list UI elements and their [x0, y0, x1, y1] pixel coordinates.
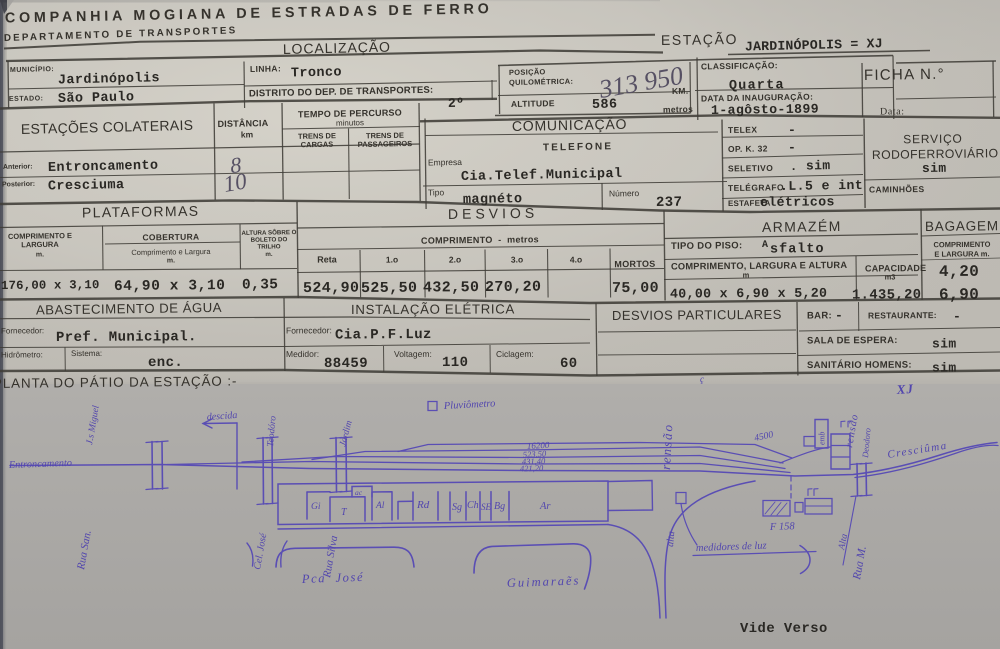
svg-text:88459: 88459 — [324, 356, 368, 372]
svg-text:KM.: KM. — [672, 86, 689, 96]
svg-text:emb: emb — [818, 432, 827, 445]
svg-text:TELÉGRAFO: TELÉGRAFO — [728, 182, 784, 193]
svg-text:Ch: Ch — [467, 500, 479, 511]
svg-text:metros: metros — [663, 104, 693, 115]
svg-text:TRILHO: TRILHO — [257, 243, 280, 250]
svg-text:Guimaraẽs: Guimaraẽs — [507, 573, 581, 590]
svg-text:BAGAGEM: BAGAGEM — [925, 218, 999, 234]
svg-text:BAR:: BAR: — [807, 310, 832, 321]
svg-text:Sistema:: Sistema: — [71, 349, 102, 358]
svg-text:176,00 x 3,10: 176,00 x 3,10 — [1, 278, 100, 293]
svg-text:CARGAS: CARGAS — [301, 140, 334, 150]
svg-text:4,20: 4,20 — [939, 263, 979, 281]
svg-text:m.: m. — [265, 251, 273, 258]
svg-text:64,90 x 3,10: 64,90 x 3,10 — [114, 278, 226, 295]
svg-text:alta: alta — [665, 531, 677, 547]
svg-text:A: A — [762, 240, 769, 251]
svg-text:F 158: F 158 — [769, 521, 796, 533]
svg-text:Tipo: Tipo — [428, 187, 445, 197]
svg-text:-: - — [788, 123, 796, 138]
svg-text:PLANTA DO PÁTIO DA ESTAÇÃO :-: PLANTA DO PÁTIO DA ESTAÇÃO :- — [0, 373, 237, 391]
svg-text:Anterior:: Anterior: — [3, 163, 33, 171]
svg-text:ESTADO:: ESTADO: — [9, 95, 44, 103]
svg-text:DISTÂNCIA: DISTÂNCIA — [217, 117, 268, 129]
svg-text:Comprimento e Largura: Comprimento e Largura — [131, 247, 211, 257]
svg-text:sim: sim — [922, 161, 947, 176]
svg-text:525,50: 525,50 — [361, 280, 418, 297]
svg-text:4.o: 4.o — [570, 254, 582, 264]
svg-text:PLATAFORMAS: PLATAFORMAS — [82, 203, 200, 221]
svg-text:enc.: enc. — [148, 355, 183, 371]
svg-text:6,90: 6,90 — [939, 286, 979, 304]
svg-text:LINHA:: LINHA: — [250, 63, 281, 74]
svg-text:Tronco: Tronco — [291, 65, 342, 81]
svg-text:ARMAZÉM: ARMAZÉM — [762, 218, 842, 235]
svg-text:421,20: 421,20 — [520, 463, 544, 474]
svg-text:Número: Número — [609, 188, 640, 198]
svg-text:.L.5 e int: .L.5 e int — [780, 178, 863, 194]
svg-text:CAPACIDADE: CAPACIDADE — [865, 263, 926, 274]
svg-text:POSIÇÃO: POSIÇÃO — [509, 67, 546, 77]
svg-text:Sg: Sg — [452, 502, 462, 513]
svg-text:E LARGURA m.: E LARGURA m. — [934, 249, 989, 258]
svg-text:2º: 2º — [448, 96, 465, 111]
svg-text:Hidrômetro:: Hidrômetro: — [1, 350, 43, 359]
svg-text:COMUNICAÇÃO: COMUNICAÇÃO — [512, 116, 628, 134]
svg-text:elétricos: elétricos — [760, 194, 835, 210]
svg-text:OP. K. 32: OP. K. 32 — [728, 143, 768, 154]
svg-text:COMPRIMENTO: COMPRIMENTO — [933, 240, 990, 249]
svg-text:Gi: Gi — [311, 502, 321, 512]
svg-text:XJ: XJ — [895, 381, 914, 397]
svg-text:.: . — [790, 160, 798, 174]
svg-text:Fornecedor:: Fornecedor: — [286, 325, 332, 335]
svg-text:MORTOS: MORTOS — [614, 259, 655, 269]
svg-text:CLASSIFICAÇÃO:: CLASSIFICAÇÃO: — [701, 60, 778, 71]
svg-text:TELEFONE: TELEFONE — [543, 141, 613, 153]
svg-text:Rd: Rd — [416, 499, 430, 511]
svg-text:LOCALIZAÇÃO: LOCALIZAÇÃO — [283, 39, 391, 57]
svg-text:SERVIÇO: SERVIÇO — [903, 132, 963, 147]
svg-text:m: m — [743, 270, 750, 279]
svg-text:Cresciuma: Cresciuma — [48, 178, 125, 194]
svg-text:Data:: Data: — [880, 106, 905, 117]
svg-text:Posterior:: Posterior: — [2, 181, 35, 189]
svg-text:-: - — [953, 309, 961, 324]
svg-text:Vide Verso: Vide Verso — [740, 621, 828, 637]
svg-text:QUILOMÉTRICA:: QUILOMÉTRICA: — [509, 77, 573, 87]
svg-text:Empresa: Empresa — [428, 157, 462, 168]
svg-text:ESTAÇÃO: ESTAÇÃO — [661, 31, 738, 48]
svg-text:Al: Al — [375, 501, 385, 511]
svg-text:Voltagem:: Voltagem: — [394, 349, 432, 359]
svg-text:Cia.P.F.Luz: Cia.P.F.Luz — [335, 327, 432, 344]
svg-text:DESVIOS PARTICULARES: DESVIOS PARTICULARES — [612, 307, 782, 323]
svg-text:0,35: 0,35 — [242, 277, 279, 293]
svg-text:Reta: Reta — [317, 254, 338, 264]
svg-text:descida: descida — [206, 410, 237, 423]
svg-text:ALTITUDE: ALTITUDE — [511, 98, 555, 109]
svg-text:40,00 x 6,90 x 5,20: 40,00 x 6,90 x 5,20 — [670, 286, 827, 302]
svg-text:TELEX: TELEX — [728, 125, 758, 135]
svg-text:RESTAURANTE:: RESTAURANTE: — [868, 310, 937, 320]
svg-text:237: 237 — [656, 195, 683, 211]
svg-text:524,90: 524,90 — [303, 280, 360, 297]
svg-text:-: - — [788, 140, 796, 155]
svg-text:CAMINHÕES: CAMINHÕES — [869, 184, 925, 194]
svg-text:3.o: 3.o — [511, 254, 523, 264]
svg-text:432,50: 432,50 — [423, 279, 480, 296]
svg-text:60: 60 — [560, 356, 578, 372]
svg-text:m.: m. — [167, 257, 175, 264]
svg-text:1-agôsto-1899: 1-agôsto-1899 — [711, 101, 819, 118]
svg-text:sfalto: sfalto — [770, 242, 825, 257]
svg-text:LARGURA: LARGURA — [21, 240, 59, 250]
svg-text:ABASTECIMENTO DE ÁGUA: ABASTECIMENTO DE ÁGUA — [36, 300, 222, 318]
svg-text:DESVIOS: DESVIOS — [448, 205, 538, 222]
svg-text:FICHA N.°: FICHA N.° — [864, 66, 945, 84]
svg-text:Entroncamento: Entroncamento — [8, 458, 72, 471]
svg-text:minutos: minutos — [336, 118, 364, 128]
svg-text:Ar: Ar — [539, 501, 551, 512]
svg-text:SE: SE — [481, 502, 492, 512]
svg-text:km: km — [241, 129, 254, 139]
svg-text:ç: ç — [700, 374, 704, 384]
svg-text:SALA DE ESPERA:: SALA DE ESPERA: — [807, 335, 898, 346]
svg-text:m.: m. — [36, 251, 44, 258]
svg-text:1.o: 1.o — [386, 254, 398, 264]
svg-text:270,20: 270,20 — [485, 279, 542, 296]
svg-text:Cia.Telef.Municipal: Cia.Telef.Municipal — [461, 167, 623, 185]
svg-text:ac: ac — [355, 488, 363, 497]
svg-text:10: 10 — [222, 168, 249, 197]
svg-text:RODOFERROVIÁRIO: RODOFERROVIÁRIO — [872, 145, 999, 162]
svg-text:2.o: 2.o — [449, 254, 461, 264]
svg-text:COMPRIMENTO - metros: COMPRIMENTO - metros — [421, 234, 539, 245]
svg-text:75,00: 75,00 — [612, 280, 659, 297]
svg-text:Medidor:: Medidor: — [286, 349, 319, 359]
svg-text:SELETIVO: SELETIVO — [728, 163, 773, 174]
svg-text:INSTALAÇÃO ELÉTRICA: INSTALAÇÃO ELÉTRICA — [351, 301, 515, 317]
svg-text:São Paulo: São Paulo — [58, 90, 135, 107]
svg-text:COMPRIMENTO, LARGURA E ALTURA: COMPRIMENTO, LARGURA E ALTURA — [671, 260, 847, 272]
svg-text:Bg: Bg — [494, 501, 505, 512]
svg-text:PASSAGEIROS: PASSAGEIROS — [358, 139, 413, 149]
svg-text:-: - — [835, 308, 843, 323]
svg-text:SANITÁRIO HOMENS:: SANITÁRIO HOMENS: — [807, 360, 912, 371]
svg-text:Entroncamento: Entroncamento — [48, 159, 159, 176]
svg-text:COBERTURA: COBERTURA — [142, 232, 199, 243]
svg-text:sim: sim — [806, 158, 831, 173]
svg-text:Fornecedor:: Fornecedor: — [1, 326, 44, 335]
svg-text:Pref. Municipal.: Pref. Municipal. — [56, 329, 197, 346]
svg-text:Jardinópolis: Jardinópolis — [58, 71, 160, 88]
svg-text:rensão: rensão — [658, 423, 675, 471]
svg-text:110: 110 — [442, 355, 468, 371]
svg-text:sim: sim — [932, 361, 957, 376]
svg-text:TIPO DO PISO:: TIPO DO PISO: — [671, 240, 743, 252]
svg-text:sim: sim — [932, 337, 957, 352]
svg-text:Ciclagem:: Ciclagem: — [496, 349, 534, 359]
svg-text:586: 586 — [592, 98, 618, 113]
svg-text:m3: m3 — [885, 272, 896, 281]
svg-text:1.435,20: 1.435,20 — [852, 288, 922, 303]
